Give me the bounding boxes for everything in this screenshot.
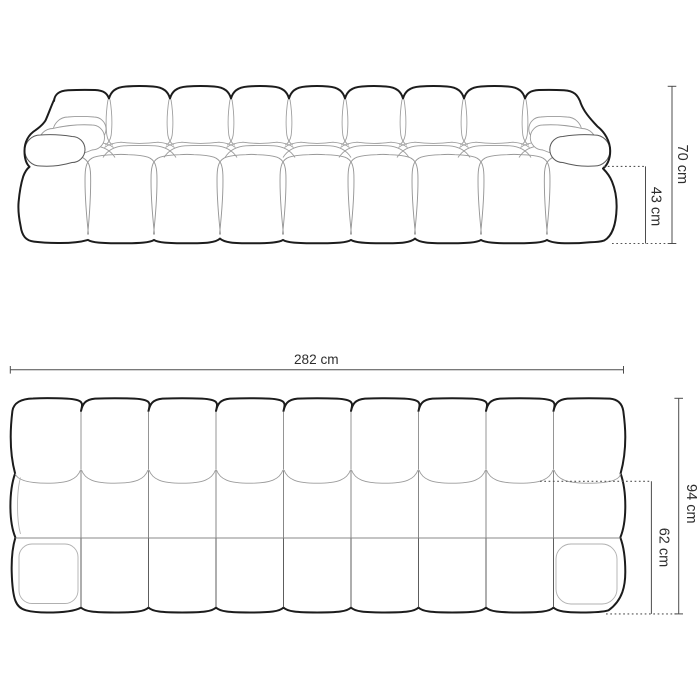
svg-text:43 cm: 43 cm — [648, 187, 664, 227]
svg-text:70 cm: 70 cm — [674, 145, 690, 185]
svg-text:282 cm: 282 cm — [294, 352, 339, 367]
svg-text:62 cm: 62 cm — [655, 528, 671, 568]
svg-text:94 cm: 94 cm — [683, 484, 699, 524]
